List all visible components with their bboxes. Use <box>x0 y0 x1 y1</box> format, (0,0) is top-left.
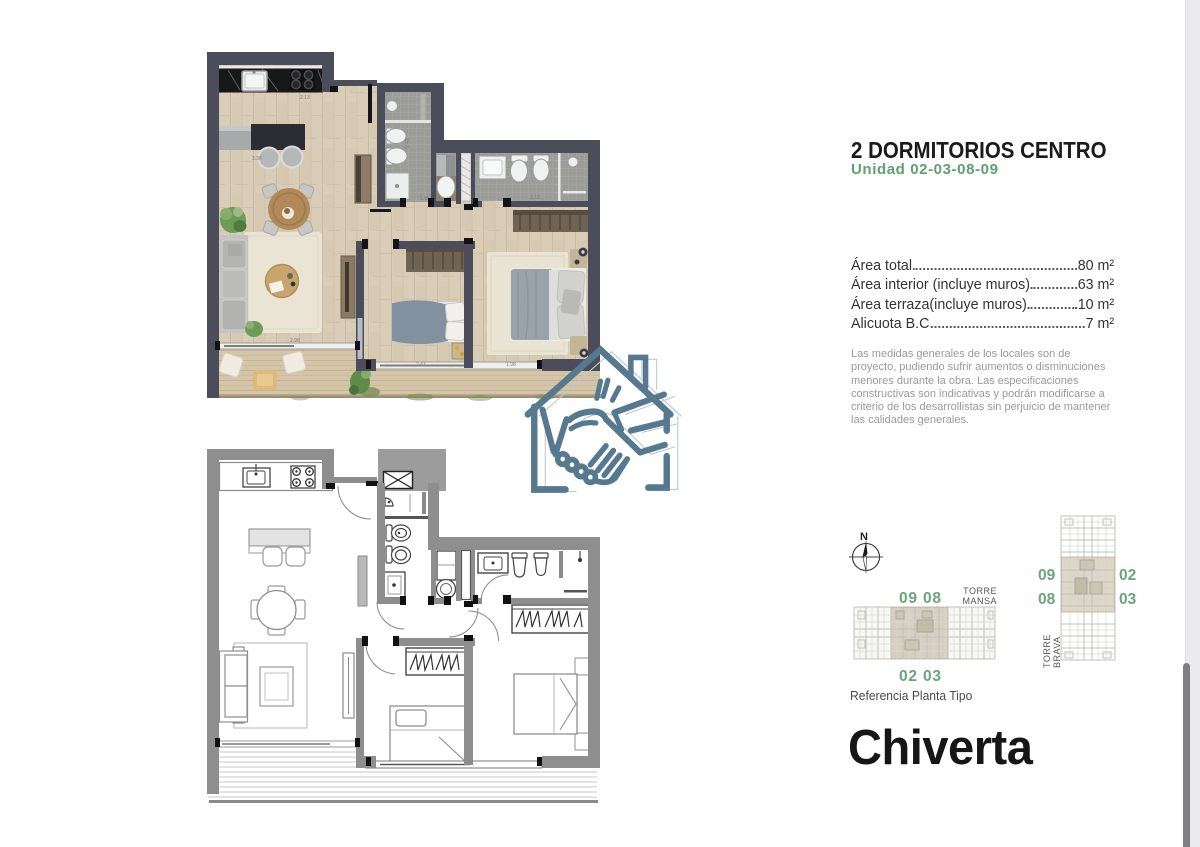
svg-text:BRAVA: BRAVA <box>1052 636 1062 668</box>
svg-text:02 03: 02 03 <box>899 668 942 685</box>
svg-text:N: N <box>860 531 868 543</box>
svg-text:TORRE: TORRE <box>963 586 997 596</box>
svg-text:2.43: 2.43 <box>405 138 411 148</box>
svg-text:2.12: 2.12 <box>530 195 540 201</box>
svg-text:2.47: 2.47 <box>416 362 426 368</box>
svg-text:2.13: 2.13 <box>300 95 310 101</box>
svg-text:MANSA: MANSA <box>962 596 997 606</box>
svg-text:03: 03 <box>1119 591 1137 608</box>
svg-text:3.36: 3.36 <box>252 156 262 162</box>
svg-text:02: 02 <box>1119 567 1136 584</box>
svg-text:08: 08 <box>1038 591 1056 608</box>
svg-text:09: 09 <box>1038 567 1056 584</box>
svg-text:TORRE: TORRE <box>1042 634 1052 668</box>
svg-text:09 08: 09 08 <box>899 590 942 607</box>
svg-text:2.98: 2.98 <box>290 338 300 344</box>
